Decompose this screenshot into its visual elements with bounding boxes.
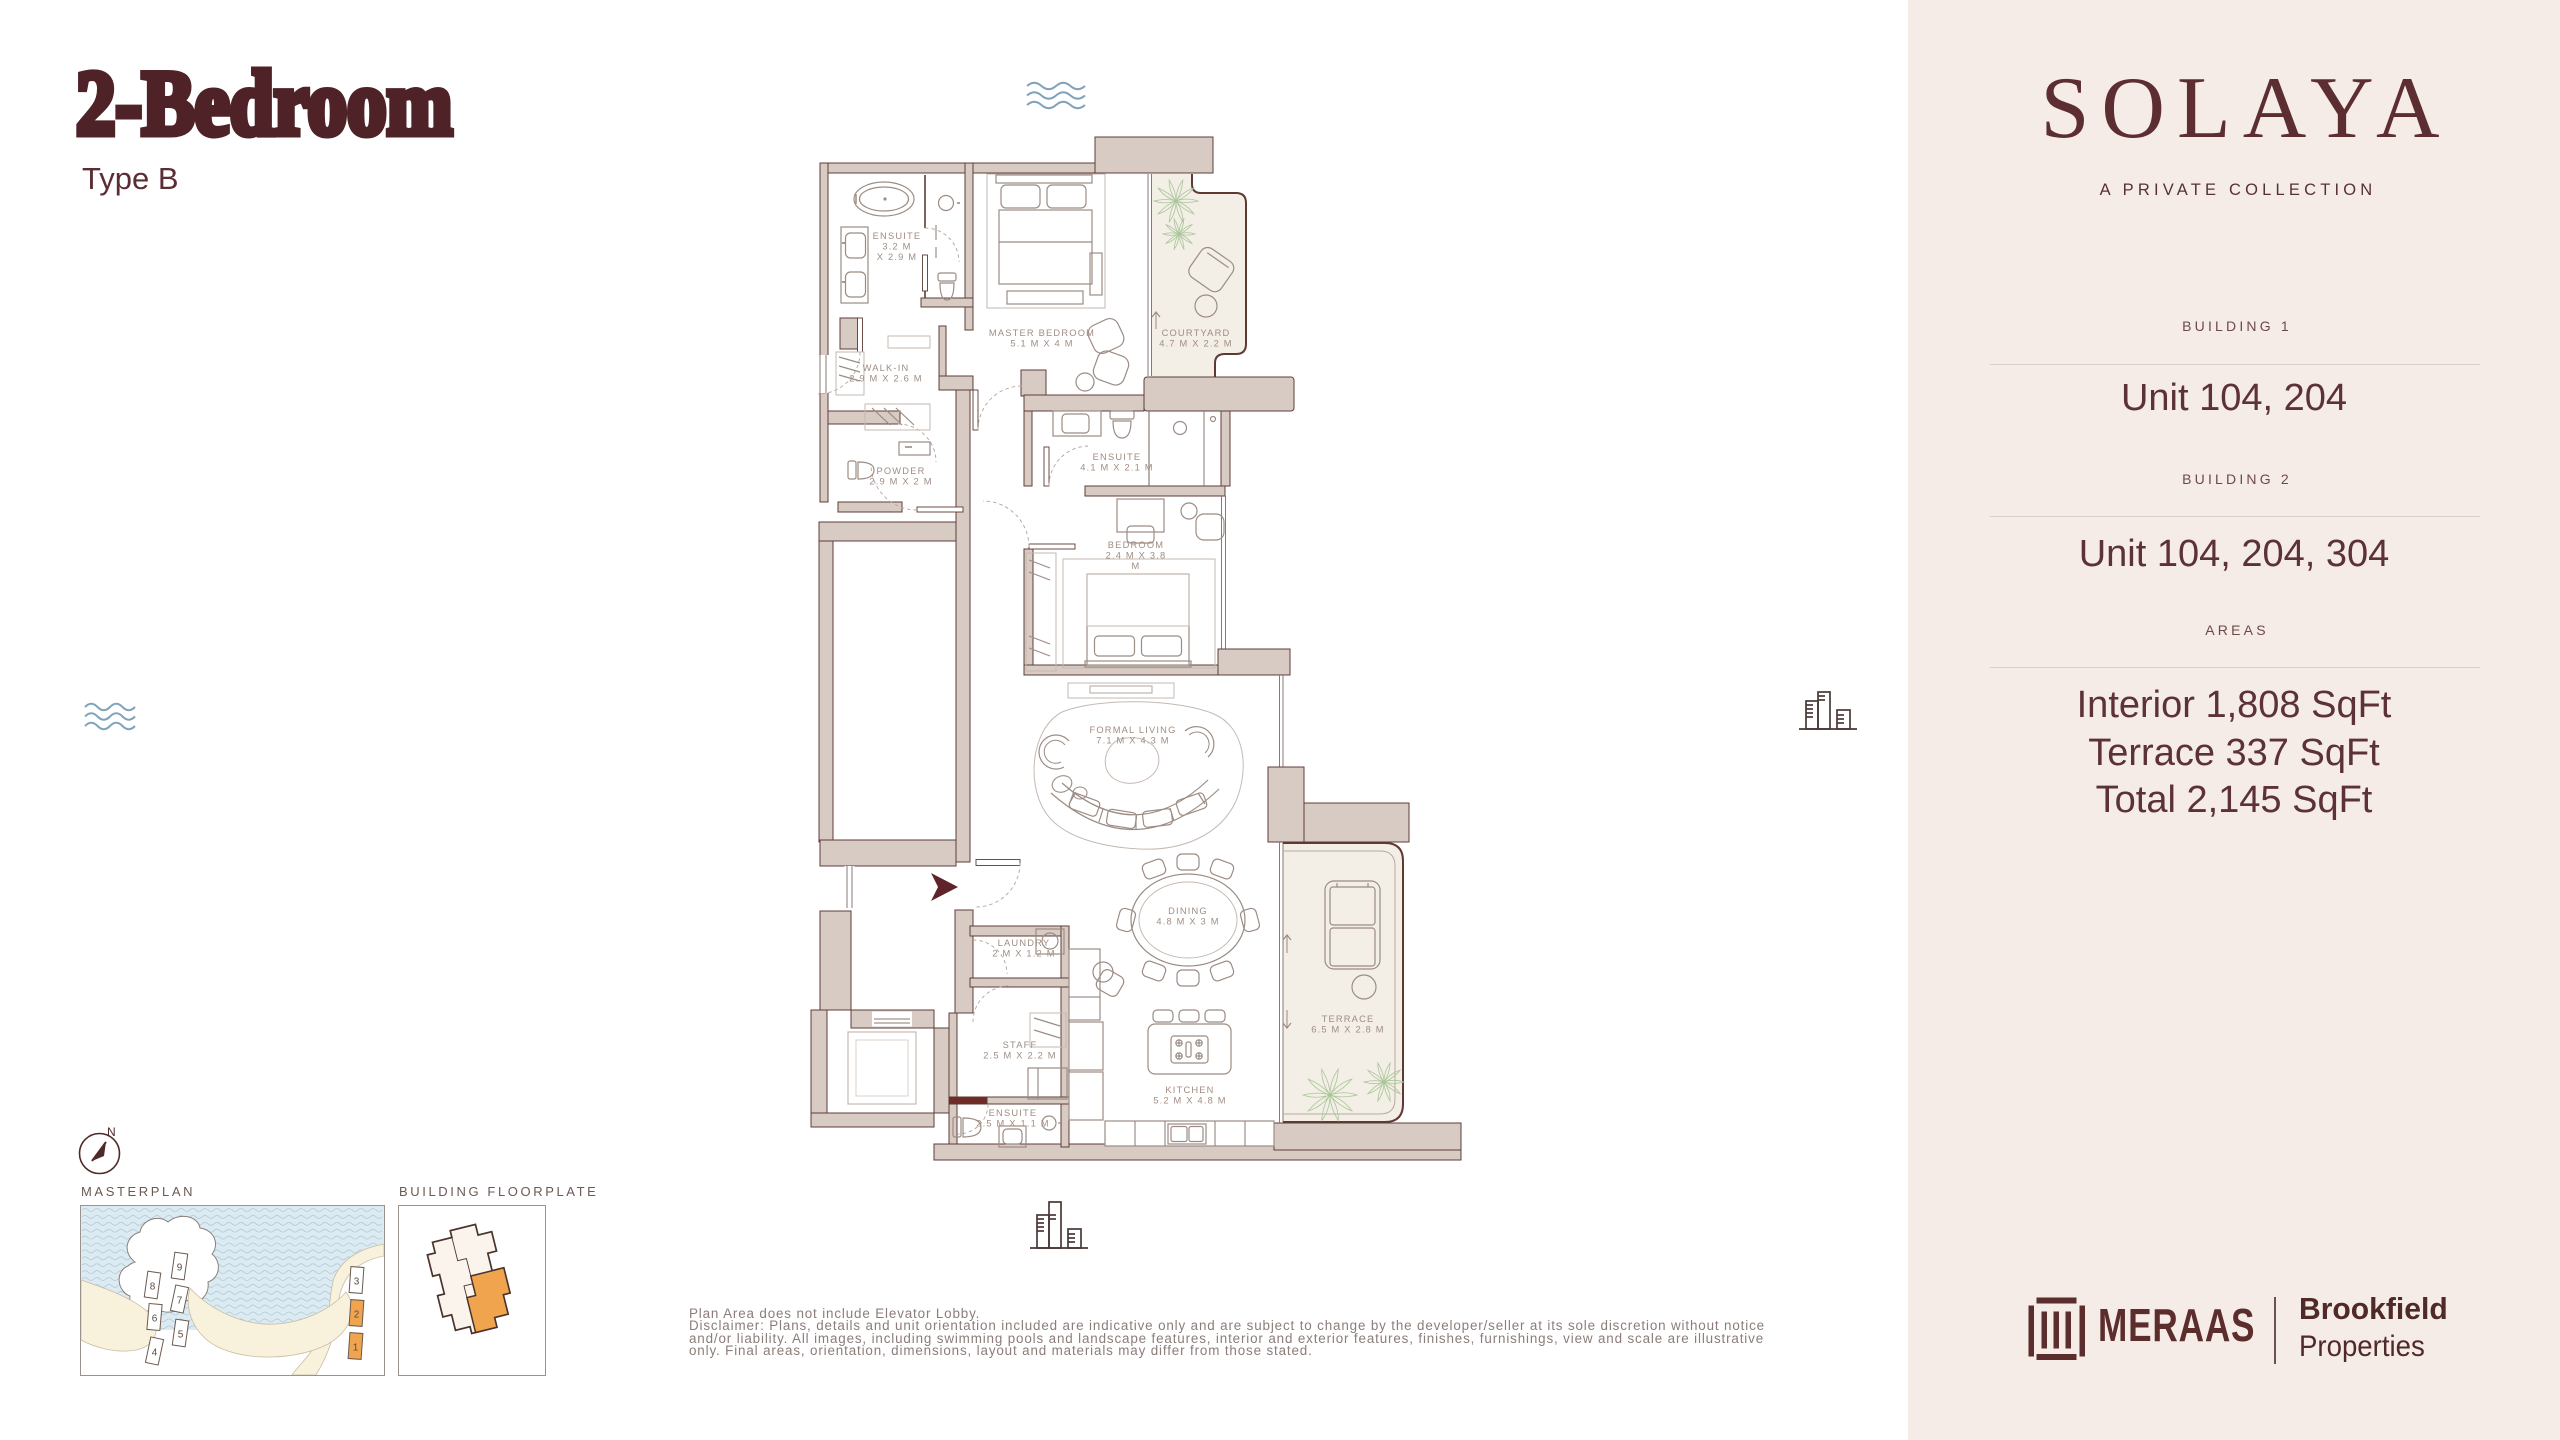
svg-text:N: N bbox=[107, 1125, 116, 1139]
svg-text:4: 4 bbox=[152, 1348, 158, 1359]
svg-text:BEDROOM2.4 M X 3.8M: BEDROOM2.4 M X 3.8M bbox=[1106, 540, 1167, 571]
svg-text:WALK-IN2.9 M X 2.6 M: WALK-IN2.9 M X 2.6 M bbox=[849, 363, 922, 384]
svg-text:7: 7 bbox=[177, 1296, 183, 1307]
svg-text:COURTYARD4.7 M X 2.2 M: COURTYARD4.7 M X 2.2 M bbox=[1159, 328, 1232, 349]
svg-text:TERRACE6.5 M X 2.8 M: TERRACE6.5 M X 2.8 M bbox=[1311, 1014, 1384, 1035]
svg-text:KITCHEN5.2 M X 4.8 M: KITCHEN5.2 M X 4.8 M bbox=[1153, 1085, 1226, 1106]
svg-text:ENSUITE4.1 M X 2.1 M: ENSUITE4.1 M X 2.1 M bbox=[1080, 452, 1153, 473]
svg-text:3: 3 bbox=[354, 1277, 360, 1288]
svg-text:9: 9 bbox=[177, 1263, 183, 1274]
svg-text:FORMAL LIVING7.1 M X 4.3 M: FORMAL LIVING7.1 M X 4.3 M bbox=[1089, 725, 1176, 746]
svg-text:8: 8 bbox=[150, 1282, 156, 1293]
svg-text:1: 1 bbox=[353, 1343, 359, 1354]
svg-text:DINING4.8 M X 3 M: DINING4.8 M X 3 M bbox=[1156, 906, 1219, 927]
svg-text:ENSUITE3.2 MX 2.9 M: ENSUITE3.2 MX 2.9 M bbox=[873, 231, 922, 262]
svg-text:POWDER2.9 M X 2 M: POWDER2.9 M X 2 M bbox=[869, 466, 932, 487]
svg-text:2: 2 bbox=[354, 1310, 360, 1321]
svg-text:MASTER BEDROOM5.1 M X 4 M: MASTER BEDROOM5.1 M X 4 M bbox=[989, 328, 1095, 349]
svg-text:5: 5 bbox=[178, 1330, 184, 1341]
svg-text:STAFF2.5 M X 2.2 M: STAFF2.5 M X 2.2 M bbox=[983, 1040, 1056, 1061]
svg-text:6: 6 bbox=[152, 1314, 158, 1325]
svg-text:LAUNDRY2 M X 1.2 M: LAUNDRY2 M X 1.2 M bbox=[992, 938, 1055, 959]
